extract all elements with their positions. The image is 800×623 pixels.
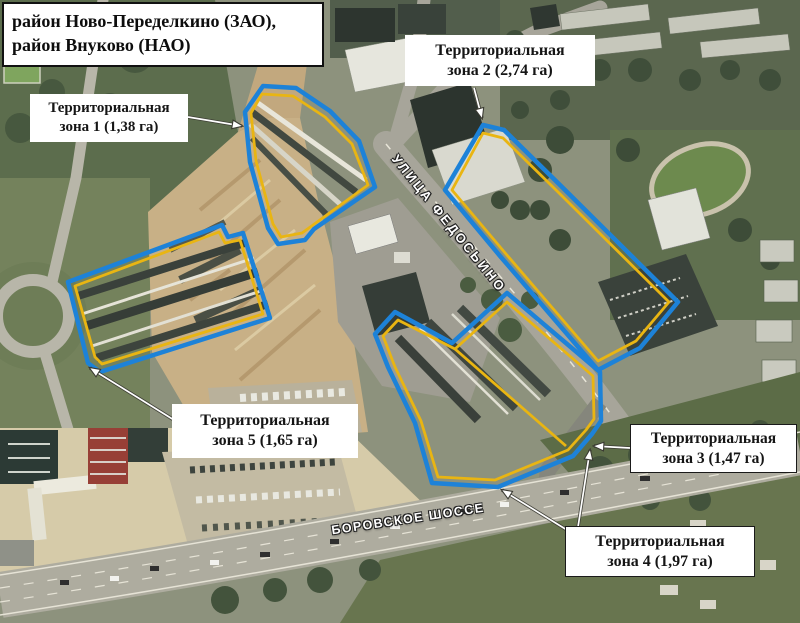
zone-label-5-line-2: зона 5 (1,65 га) <box>212 431 317 451</box>
zone-label-1-line-2: зона 1 (1,38 га) <box>60 118 159 137</box>
zone-label-3-line-1: Территориальная <box>651 429 776 448</box>
title-line-1: район Ново-Переделкино (ЗАО), <box>12 9 312 33</box>
zone-label-2-line-2: зона 2 (2,74 га) <box>447 61 552 81</box>
title-line-2: район Внуково (НАО) <box>12 33 312 57</box>
zone-label-2: Территориальная зона 2 (2,74 га) <box>405 35 595 86</box>
zone-label-5-line-1: Территориальная <box>200 411 329 431</box>
zone-label-1-line-1: Территориальная <box>48 99 169 118</box>
zone-label-1: Территориальная зона 1 (1,38 га) <box>30 94 188 142</box>
zone-label-4-line-1: Территориальная <box>595 532 724 552</box>
map-figure: УЛИЦА ФЕДОСЬИНО БОРОВСКОЕ ШОССЕ район Но… <box>0 0 800 623</box>
zone-label-3-line-2: зона 3 (1,47 га) <box>662 449 764 468</box>
title-box: район Ново-Переделкино (ЗАО), район Внук… <box>2 2 324 67</box>
zone-label-3: Территориальная зона 3 (1,47 га) <box>630 424 797 473</box>
red-building <box>88 428 128 484</box>
zone-label-5: Территориальная зона 5 (1,65 га) <box>172 404 358 458</box>
zone-label-4: Территориальная зона 4 (1,97 га) <box>565 526 755 577</box>
zone-label-2-line-1: Территориальная <box>435 41 564 61</box>
zone-label-4-line-2: зона 4 (1,97 га) <box>607 552 712 572</box>
